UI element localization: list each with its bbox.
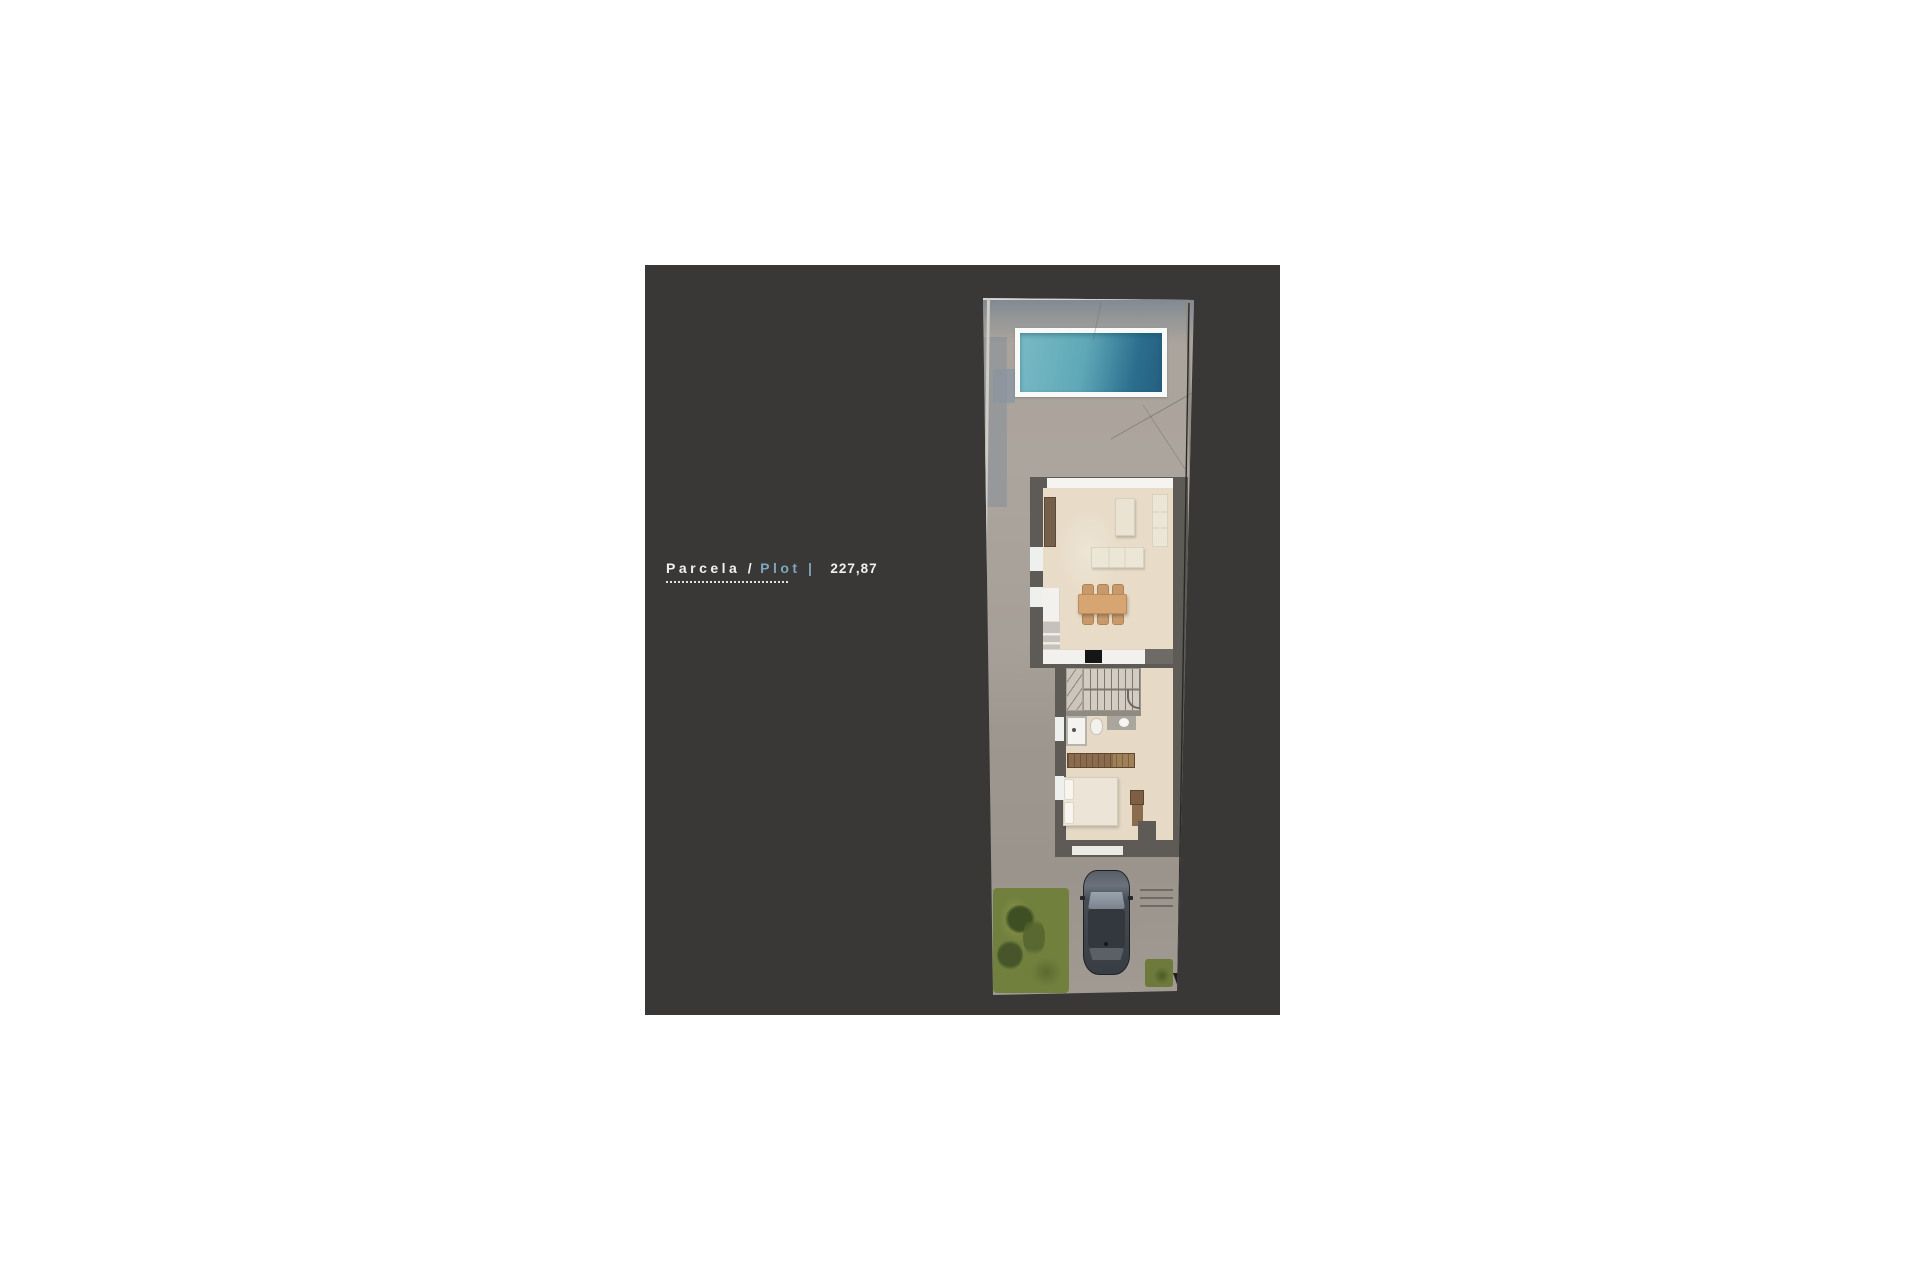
plot-area-label-line: Parcela / Plot | 227,87 — [666, 560, 878, 576]
photo-overlay — [983, 297, 1194, 995]
plot-area-label: Parcela / Plot | 227,87 — [666, 560, 878, 583]
plot-area-value: 227,87 — [830, 561, 877, 576]
site-plan-photo — [983, 297, 1194, 995]
label-primary-text: Parcela / — [666, 560, 755, 576]
concrete-crack — [1143, 405, 1185, 469]
presentation-panel: Parcela / Plot | 227,87 — [645, 265, 1280, 1015]
dotted-underline — [666, 581, 788, 583]
dimension-arrow-icon — [1173, 303, 1189, 987]
concrete-crack — [1093, 303, 1101, 341]
concrete-crack — [1111, 392, 1194, 439]
label-secondary-text: Plot | — [760, 560, 815, 576]
